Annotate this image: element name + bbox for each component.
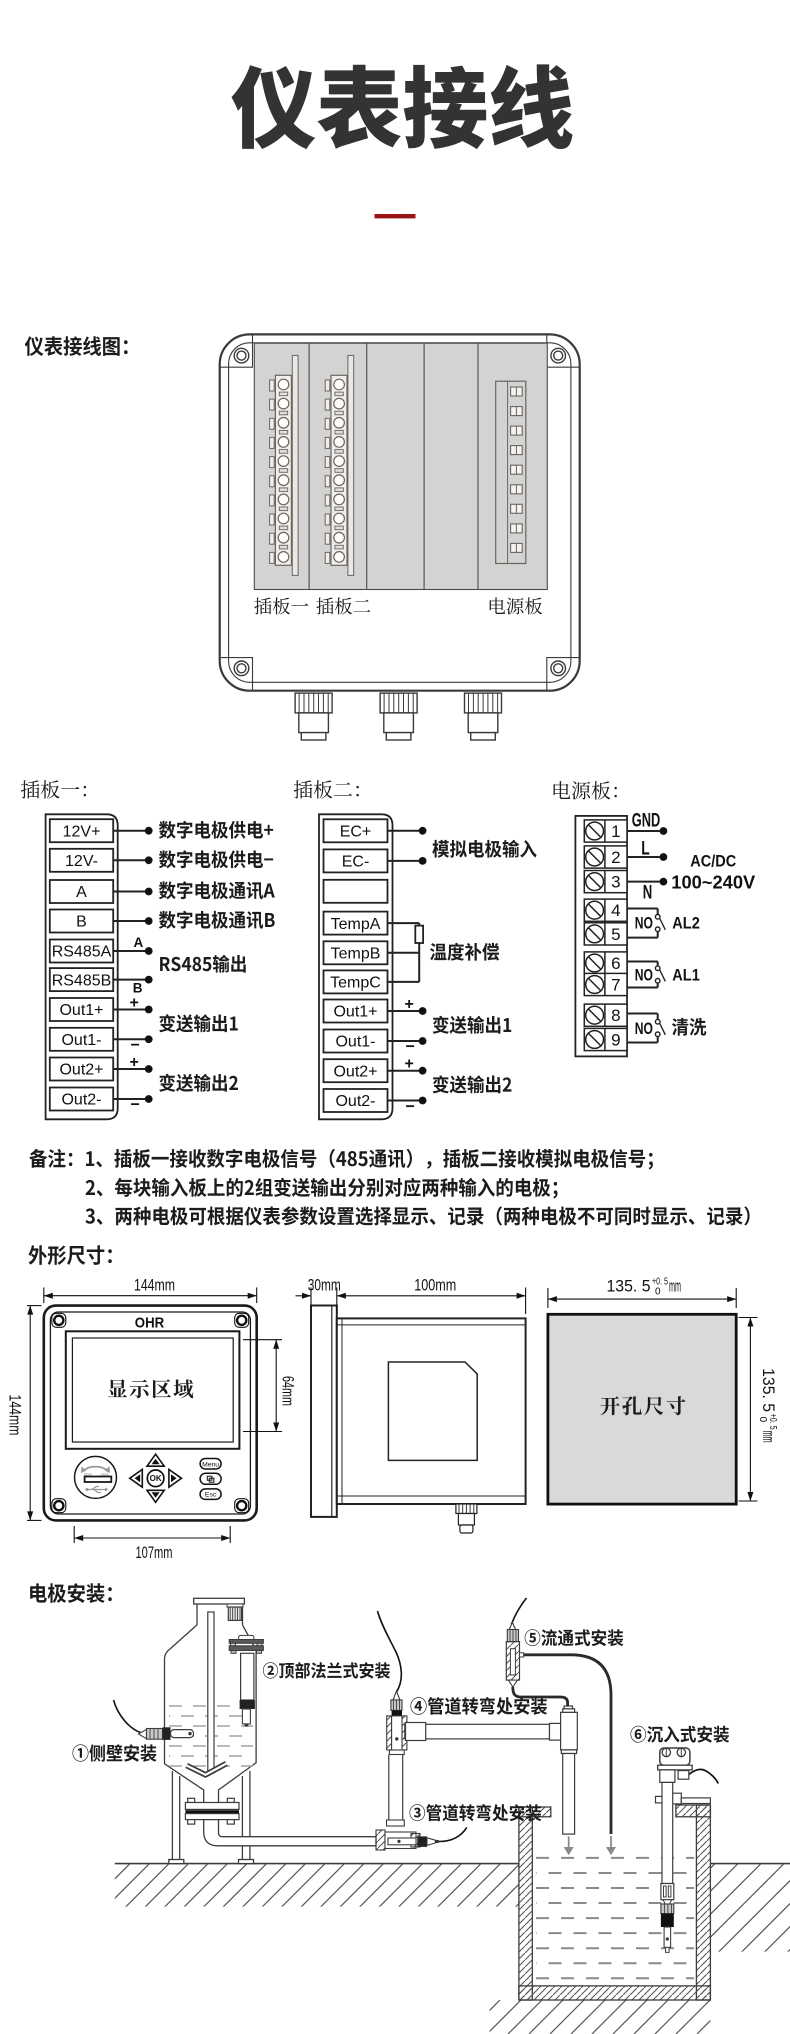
svg-text:Out1+: Out1+ bbox=[333, 1004, 377, 1021]
svg-text:NO: NO bbox=[635, 914, 653, 933]
svg-text:Out2+: Out2+ bbox=[333, 1063, 377, 1080]
svg-text:TempA: TempA bbox=[331, 916, 381, 933]
svg-text:A: A bbox=[134, 935, 144, 950]
svg-text:144mm: 144mm bbox=[134, 1277, 175, 1295]
svg-text:Esc: Esc bbox=[205, 1492, 217, 1499]
svg-text:107mm: 107mm bbox=[136, 1544, 173, 1562]
svg-text:AC/DC: AC/DC bbox=[690, 851, 736, 870]
svg-text:EC+: EC+ bbox=[340, 824, 372, 841]
svg-text:1: 1 bbox=[611, 822, 620, 841]
svg-text:GND: GND bbox=[632, 811, 661, 832]
svg-text:B: B bbox=[133, 981, 143, 996]
svg-text:Out2+: Out2+ bbox=[59, 1062, 103, 1079]
svg-text:RS485A: RS485A bbox=[52, 944, 112, 961]
svg-text:TempC: TempC bbox=[330, 975, 381, 992]
svg-text:135. 5: 135. 5 bbox=[607, 1278, 651, 1296]
svg-text:+: + bbox=[405, 1056, 414, 1073]
svg-text:Out2-: Out2- bbox=[61, 1092, 101, 1109]
svg-text:B: B bbox=[76, 914, 87, 931]
svg-text:6: 6 bbox=[611, 954, 620, 973]
svg-text:3: 3 bbox=[611, 873, 620, 892]
svg-text:12V-: 12V- bbox=[65, 853, 98, 870]
svg-text:−: − bbox=[406, 1099, 415, 1116]
svg-text:NO: NO bbox=[635, 966, 653, 985]
svg-text:A: A bbox=[76, 884, 87, 901]
svg-text:TempB: TempB bbox=[331, 946, 381, 963]
svg-text:7: 7 bbox=[611, 976, 620, 995]
svg-text:0: 0 bbox=[655, 1287, 661, 1298]
svg-text:64mm: 64mm bbox=[279, 1376, 297, 1406]
svg-text:Out2-: Out2- bbox=[335, 1093, 375, 1110]
svg-text:100mm: 100mm bbox=[414, 1277, 456, 1295]
svg-text:9: 9 bbox=[611, 1031, 620, 1050]
svg-text:OHR: OHR bbox=[135, 1315, 165, 1332]
svg-text:Out1-: Out1- bbox=[335, 1034, 375, 1051]
svg-text:RS485B: RS485B bbox=[52, 972, 112, 989]
svg-text:AL1: AL1 bbox=[672, 966, 700, 985]
svg-text:Out1-: Out1- bbox=[61, 1032, 101, 1049]
svg-text:0: 0 bbox=[757, 1417, 768, 1423]
svg-text:AL2: AL2 bbox=[672, 914, 700, 933]
svg-text:−: − bbox=[131, 1037, 140, 1054]
svg-text:+: + bbox=[130, 1054, 139, 1071]
svg-text:−: − bbox=[406, 1039, 415, 1056]
svg-text:12V+: 12V+ bbox=[63, 823, 101, 840]
svg-text:mm: mm bbox=[759, 1431, 777, 1443]
svg-text:NO: NO bbox=[635, 1019, 653, 1038]
svg-text:N: N bbox=[643, 883, 653, 904]
svg-text:144mm: 144mm bbox=[6, 1395, 24, 1436]
svg-text:mm: mm bbox=[669, 1278, 681, 1296]
svg-text:−: − bbox=[131, 1097, 140, 1114]
svg-text:2: 2 bbox=[611, 848, 620, 867]
svg-text:Out1+: Out1+ bbox=[59, 1002, 103, 1019]
svg-text:135. 5: 135. 5 bbox=[759, 1368, 777, 1412]
svg-text:EC-: EC- bbox=[342, 854, 370, 871]
svg-text:+: + bbox=[405, 996, 414, 1013]
svg-text:30mm: 30mm bbox=[308, 1277, 341, 1295]
svg-text:L: L bbox=[641, 838, 650, 859]
svg-text:Menu: Menu bbox=[202, 1461, 219, 1468]
svg-text:8: 8 bbox=[611, 1006, 620, 1025]
svg-text:OK: OK bbox=[150, 1474, 162, 1483]
svg-text:5: 5 bbox=[611, 925, 620, 944]
svg-text:100~240V: 100~240V bbox=[671, 873, 755, 893]
svg-text:+: + bbox=[130, 995, 139, 1012]
svg-text:4: 4 bbox=[611, 901, 620, 920]
